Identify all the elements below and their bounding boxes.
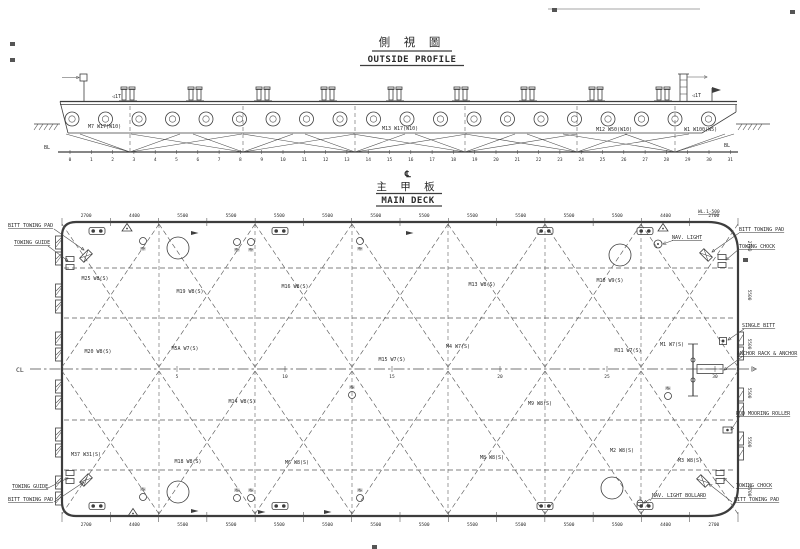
fender-tire-hub — [337, 116, 343, 122]
fender-tire — [635, 112, 649, 126]
fender-tire — [367, 112, 381, 126]
label-towing-chock-tr: TOWING CHOCK — [739, 244, 775, 250]
station-number: 2 — [111, 157, 114, 163]
label-single-bitt: SINGLE BITT — [742, 323, 775, 329]
waterline-hatch — [758, 124, 762, 130]
bitt-post-dot — [547, 504, 551, 508]
fender-tire — [199, 112, 213, 126]
bitt-post — [522, 89, 526, 100]
deck-opening — [601, 477, 623, 499]
station-number: 29 — [685, 157, 691, 163]
bitt-cap — [396, 87, 402, 90]
plate-label: M14 W8(S) — [228, 399, 255, 405]
fender-tire — [601, 112, 615, 126]
station-number: 30 — [706, 157, 712, 163]
plate-label: M11 W7(S) — [614, 348, 641, 354]
bitt-post — [598, 89, 602, 100]
plate-label: M16 W8(S) — [281, 284, 308, 290]
station-number: 7 — [218, 157, 221, 163]
dimension-bottom: 5500 — [370, 522, 381, 528]
dimension-bottom: 5500 — [612, 522, 623, 528]
dimension-top: 5500 — [177, 213, 188, 219]
manhole-label: MH — [666, 386, 671, 391]
station-number: 28 — [664, 157, 670, 163]
towing-pad — [697, 475, 710, 488]
dimension-top: 5500 — [419, 213, 430, 219]
bitt-cap — [664, 87, 670, 90]
label-towing-guide-tl: TOWING GUIDE — [14, 240, 50, 246]
datum-triangle — [122, 224, 132, 232]
baseline-label-right: BL — [724, 143, 730, 149]
datum-dot — [662, 228, 664, 230]
dimension-bottom: 4400 — [129, 522, 140, 528]
bitt-post-dot — [539, 504, 543, 508]
fender-tire-hub — [437, 116, 443, 122]
fender-tire-hub — [203, 116, 209, 122]
station-number: 12 — [323, 157, 329, 163]
station-number: 23 — [557, 157, 563, 163]
fender-tire-hub — [169, 116, 175, 122]
waterline-hatch — [39, 124, 43, 130]
bitt-post — [530, 89, 534, 100]
cl-station-number: 10 — [282, 374, 288, 380]
bitt-post — [130, 89, 134, 100]
main-deck-plan: 5101520253027004400550055005500550055005… — [8, 209, 798, 528]
station-number: 16 — [408, 157, 414, 163]
dimension-right: 5500 — [746, 437, 752, 448]
bitt-post-dot — [99, 504, 103, 508]
station-number: 0 — [69, 157, 72, 163]
manhole — [140, 494, 147, 501]
fender-tire-hub — [638, 116, 644, 122]
bitt-cap — [264, 87, 270, 90]
manhole-label: MH — [141, 487, 146, 492]
fan-line — [130, 134, 180, 152]
bitt-cap — [256, 87, 262, 90]
bitt-post — [197, 89, 201, 100]
direction-arrow — [191, 509, 199, 513]
dimension-top: 4400 — [129, 213, 140, 219]
datum-dot — [126, 228, 128, 230]
leader-lines — [46, 229, 744, 503]
bitt-post-dot — [647, 504, 651, 508]
scan-speck — [10, 58, 15, 62]
towing-chock-jaw — [716, 479, 724, 484]
fender-tire — [300, 112, 314, 126]
profile-geometry: 0123456789101112131415161718192021222324… — [34, 74, 770, 163]
bitt-post — [257, 89, 261, 100]
cl-station-number: 20 — [497, 374, 503, 380]
bitt-post — [665, 89, 669, 100]
bitt-cap — [521, 87, 527, 90]
fan-line — [415, 134, 465, 152]
bitt-cap — [321, 87, 327, 90]
dimension-top: 5500 — [274, 213, 285, 219]
nav-light-dot — [657, 243, 659, 245]
bitt-post-dot — [282, 504, 286, 508]
manhole — [234, 495, 241, 502]
deck-opening — [167, 481, 189, 503]
fender-tire — [568, 112, 582, 126]
towing-chock-jaw — [66, 265, 74, 270]
waterline-hatch — [743, 124, 747, 130]
fender-tire — [702, 112, 716, 126]
fender-tire-hub — [102, 116, 108, 122]
fender-tire — [166, 112, 180, 126]
direction-arrow — [406, 231, 414, 235]
profile-stern-rake — [60, 102, 68, 134]
towing-chock-jaw — [718, 263, 726, 268]
bitt-post — [189, 89, 193, 100]
waterline-hatch — [44, 124, 48, 130]
direction-arrow — [191, 231, 199, 235]
centerline-symbol: ℄ — [404, 169, 411, 180]
fender-tire-hub — [236, 116, 242, 122]
bitt-post-dot — [274, 229, 278, 233]
outside-profile-view: 側 視 圖 OUTSIDE PROFILE BL BL 012345678910… — [34, 35, 770, 163]
towing-chock-jaw — [66, 257, 74, 262]
towing-chock-jaw — [66, 479, 74, 484]
station-number: 11 — [302, 157, 308, 163]
fender-tire — [400, 112, 414, 126]
dimension-top: 5500 — [515, 213, 526, 219]
fender-tire — [434, 112, 448, 126]
towing-chock-jaw — [66, 471, 74, 476]
fender-tire-hub — [69, 116, 75, 122]
label-anchor-rack: ANCHOR RACK & ANCHOR — [737, 351, 798, 357]
fender-tire — [501, 112, 515, 126]
scan-speck — [743, 258, 748, 262]
fender-tire-hub — [270, 116, 276, 122]
centerline-label: CL — [16, 366, 24, 374]
waterline-hatch — [748, 124, 752, 130]
manhole-label: MH — [358, 247, 363, 252]
dimension-bottom: 5500 — [177, 522, 188, 528]
scan-speck — [790, 10, 795, 14]
fender-tire-hub — [404, 116, 410, 122]
fender-tire — [534, 112, 548, 126]
bitt-cap — [329, 87, 335, 90]
dimension-top: 5500 — [467, 213, 478, 219]
fender-tire-hub — [504, 116, 510, 122]
plate-label: M6 W8(S) — [285, 460, 309, 466]
plate-label: M20 W8(S) — [84, 349, 111, 355]
deck-title-cn: 主 甲 板 — [376, 180, 439, 193]
capacity-note: ◁1T — [692, 93, 701, 99]
dimension-bottom: 2700 — [81, 522, 92, 528]
bitt-post-dot — [91, 229, 95, 233]
profile-title-cn: 側 視 圖 — [379, 35, 446, 49]
station-number: 1 — [90, 157, 93, 163]
datum-triangle — [128, 509, 138, 517]
manhole — [357, 238, 364, 245]
bitt-cap — [196, 87, 202, 90]
station-number: 9 — [260, 157, 263, 163]
datum-triangle — [658, 224, 668, 232]
deck-opening — [609, 244, 631, 266]
bitt-post — [322, 89, 326, 100]
direction-arrow — [258, 510, 266, 514]
scan-artifacts — [10, 8, 795, 549]
dimension-bottom: 5500 — [322, 522, 333, 528]
mooring-roller-dot — [726, 429, 729, 432]
station-number: 4 — [154, 157, 157, 163]
label-towing-chock-br: TOWING CHOCK — [736, 483, 772, 489]
cl-station-number: 15 — [389, 374, 395, 380]
label-nav-light: NAV. LIGHT — [672, 235, 702, 241]
dimension-right: 5500 — [746, 290, 752, 301]
bitt-cap — [597, 87, 603, 90]
profile-title-en: OUTSIDE PROFILE — [368, 55, 457, 65]
dimension-bottom: 5500 — [467, 522, 478, 528]
deck-opening — [167, 237, 189, 259]
datum-dot — [132, 513, 134, 515]
station-number: 10 — [280, 157, 286, 163]
fan-line — [355, 134, 467, 152]
fender-tire-hub — [136, 116, 142, 122]
bitt-post-dot — [639, 229, 643, 233]
fender-tire-hub — [471, 116, 477, 122]
dimension-bottom: 5500 — [226, 522, 237, 528]
bitt-post — [657, 89, 661, 100]
station-number: 14 — [365, 157, 371, 163]
bitt-post-dot — [99, 229, 103, 233]
bitt-cap — [188, 87, 194, 90]
bitt-post — [590, 89, 594, 100]
waterline-hatch — [753, 124, 757, 130]
plate-label: M19 W8(S) — [176, 289, 203, 295]
plate-label: M5A W7(S) — [171, 346, 198, 352]
bitt-post-dot — [274, 504, 278, 508]
fan-line — [355, 134, 405, 152]
bitt-post — [397, 89, 401, 100]
bitt-cap — [462, 87, 468, 90]
waterline-hatch — [54, 124, 58, 130]
bitt-post — [122, 89, 126, 100]
station-number: 3 — [133, 157, 136, 163]
station-number: 18 — [451, 157, 457, 163]
label-bitt-towing-pad-bl: BITT TOWING PAD — [8, 497, 53, 503]
plate-label: M13 W8(S) — [468, 282, 495, 288]
plate-label: M15 W7(S) — [378, 357, 405, 363]
plate-label: M8 W8(S) — [480, 455, 504, 461]
bitt-post-dot — [539, 229, 543, 233]
double-bitt — [272, 228, 288, 235]
dimension-top: 4400 — [660, 213, 671, 219]
manhole-label: MH — [358, 488, 363, 493]
fender-tire — [266, 112, 280, 126]
direction-arrow — [324, 510, 332, 514]
towing-pad — [80, 474, 93, 487]
fan-line — [353, 134, 465, 152]
corner-radius-note: WL.1-500 — [698, 209, 720, 215]
manhole — [248, 495, 255, 502]
station-number: 17 — [429, 157, 435, 163]
pennant-flag — [712, 87, 721, 93]
station-number: 5 — [175, 157, 178, 163]
station-number: 8 — [239, 157, 242, 163]
weld-label: M7 W17(W10) — [88, 124, 121, 130]
scan-speck — [372, 545, 377, 549]
fan-line — [305, 134, 355, 152]
plate-label: M25 W8(S) — [81, 276, 108, 282]
towing-chock-jaw — [718, 255, 726, 260]
dimension-bottom: 2700 — [708, 522, 719, 528]
station-number: 22 — [536, 157, 542, 163]
baseline-label-left: BL — [44, 145, 50, 151]
manhole-label: MH — [141, 247, 146, 252]
flag-box — [80, 74, 87, 81]
dimension-bottom: 4400 — [660, 522, 671, 528]
station-number: 31 — [728, 157, 734, 163]
fan-line — [675, 134, 725, 152]
station-number: 24 — [578, 157, 584, 163]
station-number: 25 — [600, 157, 606, 163]
waterline-hatch — [49, 124, 53, 130]
fender-tire — [132, 112, 146, 126]
dimension-right: 5500 — [746, 339, 752, 350]
weld-label: M13 W17(W10) — [382, 126, 418, 132]
fan-line — [66, 134, 130, 152]
station-number: 21 — [515, 157, 521, 163]
weld-label: M12 W50(W10) — [596, 127, 632, 133]
label-bitt-towing-pad-tl: BITT TOWING PAD — [8, 223, 53, 229]
station-number: 27 — [642, 157, 648, 163]
manhole — [140, 238, 147, 245]
bitt-cap — [656, 87, 662, 90]
bitt-cap — [589, 87, 595, 90]
fan-line — [80, 134, 130, 152]
scan-speck — [552, 8, 557, 12]
deck-geometry: 5101520253027004400550055005500550055005… — [30, 213, 756, 528]
fender-tire-hub — [303, 116, 309, 122]
fan-line — [465, 134, 515, 152]
single-bitt-dot — [722, 340, 725, 343]
main-deck-header: ℄ 主 甲 板 MAIN DECK — [376, 169, 442, 206]
towing-pad — [80, 250, 93, 263]
bitt-post-dot — [91, 504, 95, 508]
bitt-post-dot — [282, 229, 286, 233]
station-number: 15 — [387, 157, 393, 163]
fender-tire-hub — [538, 116, 544, 122]
plate-label: M37 W31(S) — [71, 452, 101, 458]
manhole-label: MH — [235, 248, 240, 253]
bitt-post — [330, 89, 334, 100]
drawing-sheet: 側 視 圖 OUTSIDE PROFILE BL BL 012345678910… — [0, 0, 800, 549]
dimension-top: 2700 — [81, 213, 92, 219]
fender-tire — [65, 112, 79, 126]
label-bitt-towing-pad-tr: BITT TOWING PAD — [739, 227, 784, 233]
manhole — [665, 393, 672, 400]
fender-tire — [233, 112, 247, 126]
bitt-post — [455, 89, 459, 100]
station-number: 20 — [493, 157, 499, 163]
cl-station-number: 30 — [712, 374, 718, 380]
dimension-top: 5500 — [564, 213, 575, 219]
dimension-right: 5500 — [746, 388, 752, 399]
dimension-bottom: 5500 — [419, 522, 430, 528]
plate-label: M2 W8(S) — [610, 448, 634, 454]
station-number: 13 — [344, 157, 350, 163]
label-mooring-roller: ROD MOORING ROLLER — [736, 411, 791, 417]
manhole-label: MH — [249, 488, 254, 493]
double-bitt — [272, 503, 288, 510]
plate-label: M1 W7(S) — [660, 342, 684, 348]
plate-label: M10 W9(S) — [596, 278, 623, 284]
bitt-post — [463, 89, 467, 100]
fender-tire-hub — [705, 116, 711, 122]
manhole — [248, 239, 255, 246]
dimension-top: 5500 — [226, 213, 237, 219]
bitt-post — [265, 89, 269, 100]
waterline-hatch — [34, 124, 38, 130]
dimension-top: 5500 — [370, 213, 381, 219]
weld-label: W1 W100(W5) — [684, 127, 717, 133]
dimension-bottom: 5500 — [274, 522, 285, 528]
fender-tire-hub — [605, 116, 611, 122]
plate-label: M9 W8(S) — [528, 401, 552, 407]
towing-chock-jaw — [716, 471, 724, 476]
cl-station-number: 5 — [176, 374, 179, 380]
fender-tire-hub — [370, 116, 376, 122]
dimension-bottom: 5500 — [515, 522, 526, 528]
fan-line — [243, 134, 293, 152]
cl-station-number: 25 — [604, 374, 610, 380]
manhole-label: MH — [235, 488, 240, 493]
bitt-cap — [121, 87, 127, 90]
bitt-post-dot — [547, 229, 551, 233]
capacity-note: ◁1T — [112, 94, 121, 100]
label-towing-guide-bl: TOWING GUIDE — [12, 484, 48, 490]
station-number: 6 — [196, 157, 199, 163]
fender-tire — [467, 112, 481, 126]
station-number: 26 — [621, 157, 627, 163]
station-number: 19 — [472, 157, 478, 163]
barge-general-arrangement-drawing: 側 視 圖 OUTSIDE PROFILE BL BL 012345678910… — [0, 0, 800, 549]
manhole — [234, 239, 241, 246]
bitt-post-dot — [647, 229, 651, 233]
plate-label: M18 W8(S) — [174, 459, 201, 465]
label-bitt-towing-pad-br: BITT TOWING PAD — [734, 497, 779, 503]
deck-title-en: MAIN DECK — [381, 196, 434, 206]
bitt-cap — [388, 87, 394, 90]
fender-tire — [333, 112, 347, 126]
dimension-top: 5500 — [322, 213, 333, 219]
bitt-cap — [129, 87, 135, 90]
label-nav-light-bollard: NAV. LIGHT BOLLARD — [652, 493, 706, 499]
fan-line — [193, 134, 243, 152]
bitt-cap — [529, 87, 535, 90]
bitt-cap — [454, 87, 460, 90]
plate-label: M4 W7(S) — [446, 344, 470, 350]
waterline-hatch — [738, 124, 742, 130]
manhole-label: MH — [350, 385, 355, 390]
fan-line — [527, 134, 577, 152]
bitt-post — [389, 89, 393, 100]
scan-speck — [10, 42, 15, 46]
plate-label: M3 W8(S) — [678, 458, 702, 464]
towing-pad — [700, 249, 713, 262]
dimension-top: 5500 — [612, 213, 623, 219]
dimension-bottom: 5500 — [564, 522, 575, 528]
manhole-label: MH — [249, 248, 254, 253]
